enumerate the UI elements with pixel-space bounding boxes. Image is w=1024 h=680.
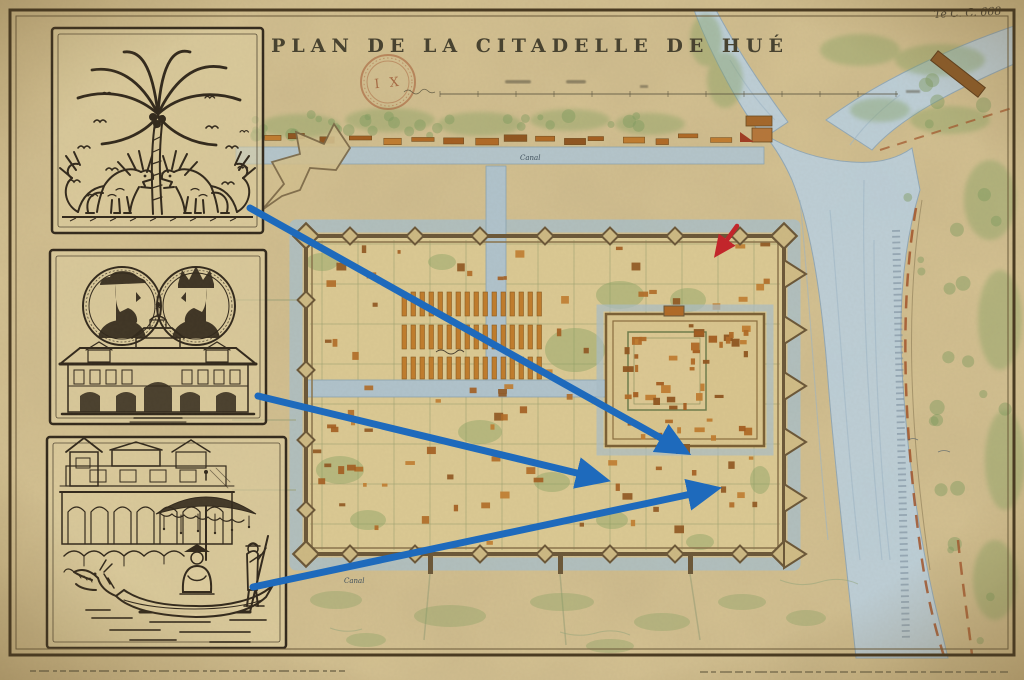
citadel-map-image: Canal bbox=[0, 0, 1024, 680]
map-document: Canal bbox=[0, 0, 1024, 680]
vignette bbox=[0, 0, 1024, 680]
